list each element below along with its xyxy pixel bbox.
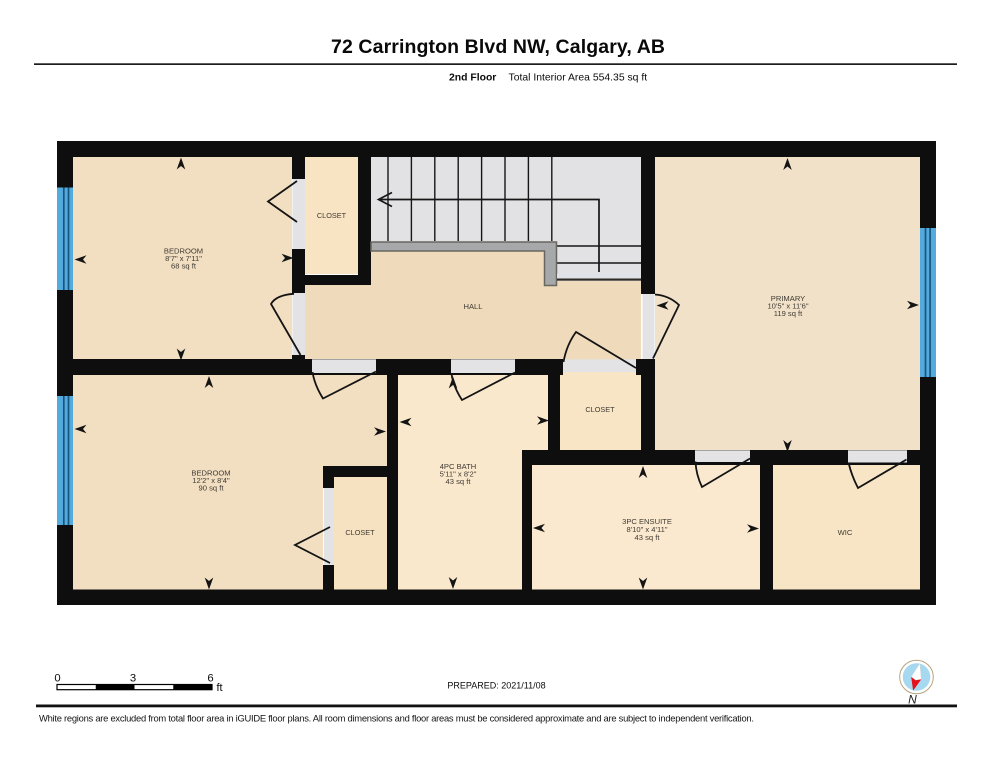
svg-text:ft: ft — [217, 682, 223, 694]
svg-text:N: N — [908, 693, 917, 707]
svg-text:White regions are excluded fro: White regions are excluded from total fl… — [39, 713, 754, 724]
svg-text:3: 3 — [130, 673, 136, 685]
svg-text:2nd Floor: 2nd Floor — [449, 73, 496, 84]
svg-text:90 sq ft: 90 sq ft — [199, 484, 225, 493]
svg-text:PREPARED: 2021/11/08: PREPARED: 2021/11/08 — [447, 681, 545, 691]
svg-text:119 sq ft: 119 sq ft — [774, 309, 803, 318]
svg-text:68 sq ft: 68 sq ft — [171, 262, 197, 271]
svg-text:CLOSET: CLOSET — [345, 528, 375, 537]
svg-text:Total Interior Area 554.35 sq: Total Interior Area 554.35 sq ft — [509, 73, 648, 84]
svg-text:CLOSET: CLOSET — [317, 211, 347, 220]
svg-text:6: 6 — [207, 673, 213, 685]
svg-text:WIC: WIC — [838, 528, 853, 537]
svg-text:CLOSET: CLOSET — [585, 405, 615, 414]
svg-text:72 Carrington Blvd NW, Calgary: 72 Carrington Blvd NW, Calgary, AB — [331, 36, 665, 58]
svg-text:0: 0 — [54, 673, 60, 685]
svg-text:43 sq ft: 43 sq ft — [635, 533, 661, 542]
svg-text:43 sq ft: 43 sq ft — [446, 477, 472, 486]
svg-text:HALL: HALL — [464, 302, 483, 311]
